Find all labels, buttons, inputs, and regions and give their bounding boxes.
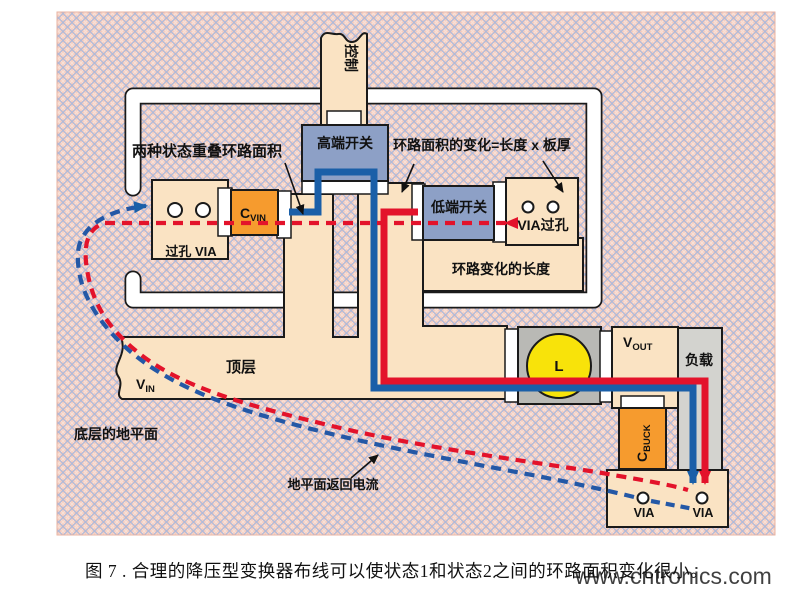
output-side-via-pad	[506, 178, 578, 245]
control-pad	[327, 111, 361, 126]
figure-7-buck-converter-layout: 控制 高端开关 低端开关 两种状态重叠环路面积 环路面积的变化=长度 x 板厚 …	[0, 0, 793, 590]
load-label: 负载	[685, 352, 713, 368]
cvin-pad-right	[277, 191, 291, 238]
control-label: 控制	[343, 44, 359, 72]
inductor-label: L	[554, 358, 563, 375]
via-hole	[196, 203, 210, 217]
low-side-switch-label: 低端开关	[430, 199, 487, 215]
via-right-label: VIA过孔	[517, 217, 568, 233]
cvin-pad-left	[218, 188, 232, 236]
via-left-label: 过孔 VIA	[165, 244, 217, 259]
top-layer-label: 顶层	[226, 359, 256, 376]
via-hole	[638, 493, 649, 504]
via-label-left: VIA	[634, 506, 655, 520]
loop-change-length-label: 环路变化的长度	[452, 261, 551, 277]
load-block	[678, 328, 722, 478]
high-side-switch-label: 高端开关	[317, 135, 373, 151]
watermark: www.cntronics.com	[574, 563, 772, 589]
overlap-loop-area-label: 两种状态重叠环路面积	[132, 142, 282, 160]
via-hole	[697, 493, 708, 504]
via-hole	[168, 203, 182, 217]
via-hole	[523, 202, 534, 213]
bottom-ground-plane-label: 底层的地平面	[74, 426, 158, 442]
loop-area-change-label: 环路面积的变化=长度 x 板厚	[393, 137, 571, 153]
via-label-right: VIA	[693, 506, 714, 520]
pcb-layout-diagram: 控制 高端开关 低端开关 两种状态重叠环路面积 环路面积的变化=长度 x 板厚 …	[0, 0, 793, 590]
via-hole	[548, 202, 559, 213]
ground-return-current-label: 地平面返回电流	[287, 477, 378, 492]
